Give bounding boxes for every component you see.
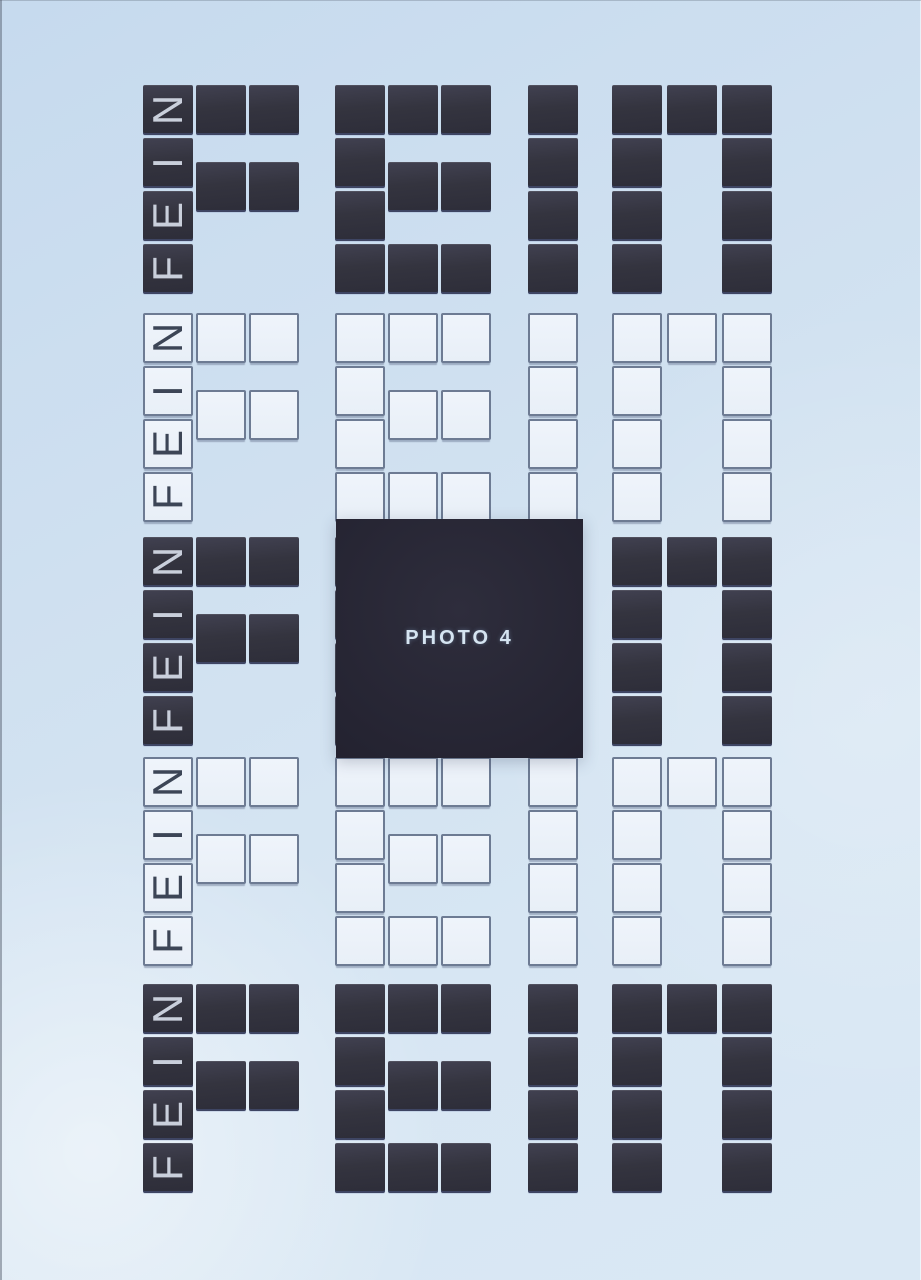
mosaic-tile-e bbox=[335, 244, 385, 294]
mosaic-tile-i bbox=[528, 916, 578, 966]
mosaic-tile-e bbox=[335, 1037, 385, 1087]
rotated-letter: N bbox=[143, 85, 193, 135]
mosaic-tile-n bbox=[722, 244, 772, 294]
mosaic-tile-e bbox=[335, 984, 385, 1034]
letter-label-tile: N bbox=[143, 85, 193, 135]
mosaic-tile-i bbox=[528, 366, 578, 416]
mosaic-tile-f bbox=[249, 614, 299, 664]
mosaic-tile-e bbox=[388, 834, 438, 884]
mosaic-tile-n bbox=[722, 419, 772, 469]
mosaic-tile-f bbox=[249, 313, 299, 363]
mosaic-tile-e bbox=[441, 313, 491, 363]
mosaic-tile-n bbox=[612, 85, 662, 135]
mosaic-tile-i bbox=[528, 85, 578, 135]
letter-label-tile: E bbox=[143, 1090, 193, 1140]
mosaic-tile-e bbox=[335, 472, 385, 522]
rotated-letter: N bbox=[143, 537, 193, 587]
rotated-letter: E bbox=[145, 865, 191, 911]
mosaic-tile-n bbox=[722, 138, 772, 188]
mosaic-tile-e bbox=[441, 1061, 491, 1111]
mosaic-tile-i bbox=[528, 191, 578, 241]
mosaic-tile-i bbox=[528, 472, 578, 522]
letter-label-tile: N bbox=[143, 313, 193, 363]
mosaic-tile-n bbox=[612, 643, 662, 693]
mosaic-tile-n bbox=[612, 1037, 662, 1087]
mosaic-tile-e bbox=[388, 984, 438, 1034]
mosaic-tile-e bbox=[388, 390, 438, 440]
mosaic-tile-n bbox=[612, 138, 662, 188]
rotated-letter: E bbox=[143, 1090, 193, 1140]
mosaic-tile-n bbox=[612, 1143, 662, 1193]
mosaic-tile-n bbox=[612, 244, 662, 294]
mosaic-tile-i bbox=[528, 1090, 578, 1140]
rotated-letter: F bbox=[143, 696, 193, 746]
mosaic-tile-i bbox=[528, 313, 578, 363]
mosaic-tile-n bbox=[667, 85, 717, 135]
letter-label-tile: E bbox=[143, 863, 193, 913]
letter-label-tile: N bbox=[143, 757, 193, 807]
mosaic-tile-e bbox=[335, 757, 385, 807]
mosaic-tile-e bbox=[388, 85, 438, 135]
rotated-letter: N bbox=[143, 984, 193, 1034]
mosaic-tile-e bbox=[441, 834, 491, 884]
mosaic-tile-f bbox=[196, 537, 246, 587]
mosaic-tile-e bbox=[335, 191, 385, 241]
mosaic-tile-n bbox=[667, 537, 717, 587]
mosaic-tile-e bbox=[441, 916, 491, 966]
mosaic-tile-e bbox=[441, 162, 491, 212]
letter-label-tile: I bbox=[143, 1037, 193, 1087]
mosaic-tile-n bbox=[612, 696, 662, 746]
rotated-letter: E bbox=[143, 643, 193, 693]
mosaic-tile-n bbox=[722, 1143, 772, 1193]
mosaic-tile-e bbox=[441, 757, 491, 807]
mosaic-tile-i bbox=[528, 419, 578, 469]
mosaic-tile-f bbox=[196, 390, 246, 440]
mosaic-tile-n bbox=[612, 191, 662, 241]
mosaic-tile-i bbox=[528, 244, 578, 294]
mosaic-tile-n bbox=[612, 366, 662, 416]
mosaic-tile-f bbox=[196, 757, 246, 807]
letter-label-tile: I bbox=[143, 590, 193, 640]
mosaic-tile-f bbox=[249, 537, 299, 587]
mosaic-tile-f bbox=[249, 757, 299, 807]
mosaic-tile-n bbox=[722, 537, 772, 587]
rotated-letter: I bbox=[145, 368, 191, 414]
mosaic-tile-e bbox=[335, 366, 385, 416]
letter-label-tile: F bbox=[143, 916, 193, 966]
mosaic-tile-f bbox=[249, 85, 299, 135]
rotated-letter: I bbox=[145, 812, 191, 858]
mosaic-tile-f bbox=[196, 313, 246, 363]
letter-label-tile: I bbox=[143, 810, 193, 860]
mosaic-tile-n bbox=[722, 191, 772, 241]
mosaic-tile-i bbox=[528, 757, 578, 807]
mosaic-tile-e bbox=[441, 244, 491, 294]
mosaic-tile-e bbox=[335, 313, 385, 363]
mosaic-tile-e bbox=[388, 1061, 438, 1111]
mosaic-tile-n bbox=[722, 863, 772, 913]
mosaic-tile-f bbox=[249, 1061, 299, 1111]
mosaic-tile-e bbox=[335, 810, 385, 860]
mosaic-tile-n bbox=[612, 863, 662, 913]
mosaic-tile-n bbox=[722, 313, 772, 363]
mosaic-tile-n bbox=[722, 984, 772, 1034]
rotated-letter: I bbox=[143, 1037, 193, 1087]
mosaic-tile-e bbox=[335, 863, 385, 913]
mosaic-tile-e bbox=[388, 757, 438, 807]
rotated-letter: I bbox=[143, 138, 193, 188]
mosaic-tile-e bbox=[335, 138, 385, 188]
mosaic-tile-n bbox=[722, 1037, 772, 1087]
mosaic-tile-i bbox=[528, 863, 578, 913]
mosaic-tile-f bbox=[196, 162, 246, 212]
rotated-letter: E bbox=[145, 421, 191, 467]
mosaic-tile-f bbox=[196, 834, 246, 884]
mosaic-tile-n bbox=[612, 419, 662, 469]
mosaic-tile-e bbox=[441, 472, 491, 522]
letter-label-tile: E bbox=[143, 419, 193, 469]
mosaic-tile-n bbox=[667, 984, 717, 1034]
mosaic-tile-n bbox=[612, 1090, 662, 1140]
mosaic-tile-e bbox=[335, 1143, 385, 1193]
letter-label-tile: F bbox=[143, 244, 193, 294]
photo-placeholder-label: PHOTO 4 bbox=[405, 627, 513, 650]
rotated-letter: I bbox=[143, 590, 193, 640]
mosaic-tile-n bbox=[722, 590, 772, 640]
mosaic-tile-n bbox=[612, 590, 662, 640]
mosaic-tile-e bbox=[388, 313, 438, 363]
letter-label-tile: F bbox=[143, 472, 193, 522]
rotated-letter: F bbox=[145, 918, 191, 964]
mosaic-tile-n bbox=[667, 313, 717, 363]
mosaic-tile-i bbox=[528, 810, 578, 860]
mosaic-tile-n bbox=[722, 757, 772, 807]
mosaic-tile-i bbox=[528, 1143, 578, 1193]
mosaic-tile-n bbox=[612, 757, 662, 807]
mosaic-tile-n bbox=[612, 984, 662, 1034]
letter-label-tile: N bbox=[143, 537, 193, 587]
mosaic-tile-e bbox=[335, 916, 385, 966]
photo-placeholder-card: PHOTO 4 bbox=[336, 519, 583, 758]
mosaic-tile-n bbox=[722, 810, 772, 860]
rotated-letter: E bbox=[143, 191, 193, 241]
mosaic-tile-n bbox=[667, 757, 717, 807]
mosaic-tile-n bbox=[722, 643, 772, 693]
mosaic-tile-e bbox=[388, 244, 438, 294]
mosaic-tile-n bbox=[722, 696, 772, 746]
mosaic-tile-i bbox=[528, 1037, 578, 1087]
mosaic-tile-e bbox=[388, 1143, 438, 1193]
mosaic-tile-f bbox=[196, 1061, 246, 1111]
mosaic-tile-f bbox=[196, 984, 246, 1034]
mosaic-tile-n bbox=[612, 537, 662, 587]
mosaic-tile-f bbox=[196, 614, 246, 664]
letter-label-tile: E bbox=[143, 191, 193, 241]
mosaic-tile-e bbox=[388, 162, 438, 212]
mosaic-tile-n bbox=[722, 472, 772, 522]
mosaic-tile-e bbox=[335, 1090, 385, 1140]
mosaic-tile-i bbox=[528, 138, 578, 188]
mosaic-tile-n bbox=[612, 810, 662, 860]
mosaic-tile-n bbox=[722, 85, 772, 135]
mosaic-tile-n bbox=[612, 313, 662, 363]
mosaic-tile-e bbox=[441, 85, 491, 135]
mosaic-tile-f bbox=[249, 834, 299, 884]
mosaic-tile-f bbox=[249, 390, 299, 440]
letter-label-tile: F bbox=[143, 1143, 193, 1193]
mosaic-tile-e bbox=[335, 419, 385, 469]
mosaic-tile-n bbox=[722, 916, 772, 966]
mosaic-tile-n bbox=[722, 366, 772, 416]
mosaic-tile-n bbox=[722, 1090, 772, 1140]
mosaic-tile-e bbox=[441, 1143, 491, 1193]
rotated-letter: N bbox=[145, 315, 191, 361]
letter-label-tile: F bbox=[143, 696, 193, 746]
mosaic-tile-n bbox=[612, 472, 662, 522]
mosaic-tile-f bbox=[249, 984, 299, 1034]
rotated-letter: F bbox=[143, 244, 193, 294]
rotated-letter: F bbox=[145, 474, 191, 520]
mosaic-tile-f bbox=[196, 85, 246, 135]
rotated-letter: F bbox=[143, 1143, 193, 1193]
letter-label-tile: E bbox=[143, 643, 193, 693]
mosaic-tile-i bbox=[528, 984, 578, 1034]
mosaic-tile-e bbox=[335, 85, 385, 135]
mosaic-tile-e bbox=[388, 472, 438, 522]
letter-label-tile: N bbox=[143, 984, 193, 1034]
mosaic-tile-e bbox=[388, 916, 438, 966]
letter-label-tile: I bbox=[143, 138, 193, 188]
mosaic-tile-e bbox=[441, 984, 491, 1034]
mosaic-tile-e bbox=[441, 390, 491, 440]
mosaic-tile-n bbox=[612, 916, 662, 966]
mosaic-tile-f bbox=[249, 162, 299, 212]
rotated-letter: N bbox=[145, 759, 191, 805]
letter-label-tile: I bbox=[143, 366, 193, 416]
